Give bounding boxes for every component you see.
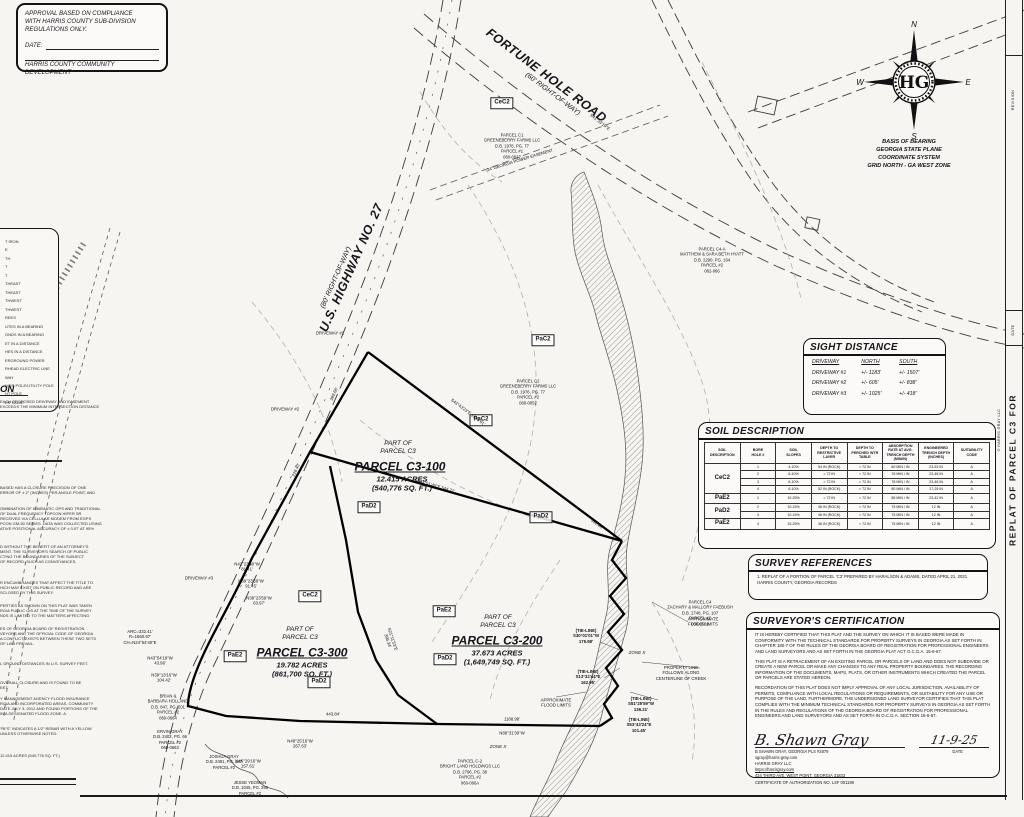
legend-line: ONDS IN A BEARING [5, 331, 58, 339]
soil-row: 310-15%36 IN (ROCK)> 72 IN75 MIN / IN12 … [705, 511, 990, 518]
left-note-block: OMBINATION OF KINEMATIC GPS AND TRADITIO… [0, 507, 72, 531]
map-label: DRIVEWAY #3 [185, 575, 213, 580]
map-label: N46°29'16"W 157.61' [235, 759, 261, 770]
map-label: PaC2 [531, 334, 554, 346]
surveyor-name-line: B SHAWN GRAY, GEORGIA PLS #2879 [755, 749, 828, 754]
legend-line: TH [5, 255, 58, 263]
legend-line: REES [5, 314, 58, 322]
map-label: ZONE X [629, 650, 646, 656]
sight-cell: +/- 1183' [861, 370, 899, 376]
map-label: ARC=332.41' R=1660.97' CH=N24°54'40"E [123, 629, 156, 645]
map-label: DRIVEWAY #1 [316, 330, 344, 335]
left-note-block: ES OF GEORGIA BOARD OF REGISTRATIONVEYOR… [0, 627, 72, 647]
soil-row: CeC2 14-10%54 IN (ROCK)> 72 IN80 MIN / I… [705, 463, 990, 470]
approval-text: APPROVAL BASED ON COMPLIANCE WITH HARRIS… [25, 10, 159, 35]
certification-paragraph: IT IS HEREBY CERTIFIED THAT THIS PLAT AN… [755, 632, 991, 655]
surveyor-signature-line: B. Shawn Gray [755, 725, 905, 748]
map-label: CeC2 [298, 590, 321, 602]
map-label: JESSE YEOMAN D.B. 1045, PG. 295 PARCEL #… [232, 780, 268, 796]
soil-th: SOIL DESCRIPTION [705, 443, 741, 464]
map-label: PARCEL C4-A MATTHEW & SARA BETH HYATT D.… [680, 246, 744, 273]
compass-rose: HG N S W E [856, 18, 972, 145]
sight-cell: DRIVEWAY #2 [812, 380, 861, 386]
soil-th: ABSORPTION RATE AT AVG. TRENCH DEPTH (MI… [883, 443, 919, 464]
soil-th: DEPTH TO PERCHED WTR TABLE [847, 443, 883, 464]
map-label: (TIE-LINE) S51°25'59"W 136.21' [628, 696, 654, 712]
map-label: 1188.98' [504, 716, 520, 721]
legend-line: HES IN A DISTANCE [5, 348, 58, 356]
date-label: DATE [952, 749, 963, 754]
approval-date-blank [46, 49, 160, 50]
legend-line: THEAST [5, 289, 58, 297]
soil-row: 36-10%> 72 IN> 72 IN78 MIN / IN23-48 INA [705, 478, 990, 485]
sight-distance-box: SIGHT DISTANCE DRIVEWAY NORTH SOUTH DRIV… [803, 338, 946, 415]
map-label: (TIE-LINE) S53°43'24"E 101.45' [627, 717, 652, 733]
sight-cell: DRIVEWAY #3 [812, 391, 861, 397]
approval-date-label: DATE: [25, 42, 43, 50]
soil-th: DEPTH TO RESTRICTIVE LAYER [811, 443, 847, 464]
sight-col-south: SOUTH [899, 359, 937, 365]
soil-description-title: SOIL DESCRIPTION [699, 423, 995, 440]
legend-line: WAY [5, 374, 58, 382]
soil-description-box: SOIL DESCRIPTION SOIL DESCRIPTION BORE H… [698, 422, 996, 549]
map-label: 443.84' [326, 711, 340, 716]
soil-row: 26-10%> 72 IN> 72 IN78 MIN / IN23-48 INA [705, 471, 990, 478]
map-label: N42°23'10"W 81.41' [234, 562, 260, 573]
survey-references-box: SURVEY REFERENCES 1. REPLAT OF A PORTION… [748, 554, 988, 600]
map-label: N43°54'19"W 43.96' [147, 656, 173, 667]
approval-agency: HARRIS COUNTY COMMUNITY DEVELOPMENT [25, 61, 159, 77]
sight-cell: +/- 1507' [899, 370, 937, 376]
map-label: PART OF PARCEL C3 [480, 614, 516, 630]
map-label: (TIE-LINE) S30°01'01"W 175.98' [573, 628, 599, 644]
left-note-block: EACH PROPOSED DRIVEWAY AND EASEMENTEXCEE… [0, 400, 72, 410]
left-note-block: 12.415 ACRES (540,776 SQ. FT.) [0, 754, 72, 759]
map-label: N48°25'16"W 267.63' [287, 739, 313, 750]
map-label: PaD2 [529, 511, 552, 523]
legend-line: ET IN A DISTANCE [5, 340, 58, 348]
map-label: PaD2 [433, 653, 456, 665]
soil-table: SOIL DESCRIPTION BORE HOLE # SOIL SLOPES… [704, 442, 990, 530]
left-note-block: R ENCUMBRANCES THAT AFFECT THE TITLE TOH… [0, 581, 72, 596]
sight-col-driveway: DRIVEWAY [812, 359, 861, 365]
sight-cell: +/- 418' [899, 391, 937, 397]
map-label: ERVIN GRAY D.B. 2402, PG. 66 PARCEL #2 0… [153, 729, 187, 751]
left-note-block: BASED HAS A CLOSURE PRECISION OF ONEERRO… [0, 486, 72, 496]
soil-row: PaD2 210-15%36 IN (ROCK)> 72 IN75 MIN / … [705, 504, 990, 511]
plat-sheet: FORTUNE HOLE ROAD(60' RIGHT-OF-WAY)U.S. … [0, 0, 1024, 817]
legend-line: RHEAD ELECTRIC LINE [5, 365, 58, 373]
soil-code: PaE2 [705, 519, 741, 530]
compass-monogram: HG [899, 73, 930, 93]
map-label: BRIAN & BARBARA HOLLAND D.B. 847, PG. 20… [148, 693, 189, 720]
map-label: N89°31'30"W [499, 730, 525, 735]
map-label: PaD2 [357, 501, 380, 513]
legend-line: THEAST [5, 280, 58, 288]
map-label: N39°23'59"W 91.45' [238, 579, 264, 590]
map-label: PaE2 [224, 650, 247, 662]
map-label: APPROXIMATE FLOOD LIMITS [688, 617, 719, 628]
power-easement-line-1 [430, 105, 660, 190]
soil-th: SOIL SLOPES [776, 443, 812, 464]
map-label: CeC2 [490, 97, 513, 109]
parcel-boundary [188, 352, 626, 726]
left-note-block: D WITHOUT THE BENEFIT OF AN ATTORNEY'SME… [0, 545, 72, 565]
map-label: PART OF PARCEL C3 [380, 440, 416, 456]
soil-th: ENGINEERED TRENCH DEPTH (INCHES) [918, 443, 954, 464]
left-note-block: Y MANAGEMENT AGENCY FLOOD INSURANCERGIA … [0, 697, 72, 717]
highway-27-centerline [165, 0, 452, 817]
map-label: PARCEL C3-200 [452, 634, 543, 649]
left-border-line [0, 460, 62, 462]
surveyor-contact: sgray@harris-gray.com HARRIS GRAY LLC ht… [747, 754, 999, 787]
basis-of-bearing: BASIS OF BEARING GEORGIA STATE PLANE COO… [843, 138, 975, 170]
legend-line: THWEST [5, 297, 58, 305]
map-label: N39°23'59"W 63.97' [246, 596, 272, 607]
soil-code: CeC2 [705, 463, 741, 493]
survey-reference-item: 1. REPLAT OF A PORTION OF PARCEL 'C3' PR… [749, 572, 987, 588]
map-label: REPLAT OF PARCEL C3 FOR [1008, 394, 1019, 546]
legend-line: UTES IN A BEARING [5, 323, 58, 331]
legend-line: THWEST [5, 306, 58, 314]
map-label: DRIVEWAY #2 [271, 406, 299, 411]
highway-27-east-edge [174, 0, 461, 817]
approval-stamp-box: APPROVAL BASED ON COMPLIANCE WITH HARRIS… [16, 3, 168, 72]
soil-row: PaE2 110-25%> 72 IN> 72 IN85 MIN / IN23-… [705, 493, 990, 504]
legend-line: ERGROUND POWER [5, 357, 58, 365]
map-label: DATE [1011, 325, 1015, 336]
surveyor-signature: B. Shawn Gray [753, 731, 870, 749]
soil-row: 46-10%52 IN (ROCK)> 72 IN80 MIN / IN17-2… [705, 486, 990, 493]
certification-paragraph: RECORDATION OF THIS PLAT DOES NOT IMPLY … [755, 685, 991, 719]
legend-line: T IRON [5, 238, 58, 246]
certification-title: SURVEYOR'S CERTIFICATION [747, 613, 999, 630]
map-label: PARCEL C3-100 [355, 460, 446, 475]
legend-line: E [5, 246, 58, 254]
map-label: PART OF PARCEL C3 [282, 626, 318, 642]
left-note-block: PERTIES AS SHOWN ON THIS PLAT WAS TAKENR… [0, 604, 72, 619]
signature-date-line: 11-9-25 [919, 725, 989, 748]
highway-27-west-edge [156, 0, 443, 817]
map-label: PARCEL C2 GREENEBERRY FARMS LLC D.B. 197… [500, 378, 556, 405]
survey-references-title: SURVEY REFERENCES [749, 555, 987, 572]
map-label: © HARRIS GRAY LLC [997, 409, 1001, 451]
sheet-bottom-border [80, 795, 1007, 797]
left-note-block: "RFS" INDICATES A 1/2" REBAR WITH A YELL… [0, 727, 72, 737]
sight-cell: +/- 605' [861, 380, 899, 386]
map-label: N39°13'16"W 104.42' [151, 673, 177, 684]
map-label: 37.673 ACRES (1,649,749 SQ. FT.) [464, 649, 530, 668]
map-label: PARCEL C-2 BRIGHT LAND HOLDINGS LLC D.B.… [440, 758, 500, 785]
soil-th: BORE HOLE # [740, 443, 776, 464]
soil-row: PaE2 415-25%36 IN (ROCK)> 72 IN75 MIN / … [705, 519, 990, 530]
compass-star: HG [864, 30, 964, 130]
compass-e: E [965, 78, 971, 87]
compass-w: W [856, 78, 865, 87]
left-note-block: OVERALL CLOSURE AND IS FOUND TO BEEET. [0, 681, 72, 691]
legend-line: T [5, 263, 58, 271]
compass-n: N [911, 20, 917, 29]
surveyors-certification-box: SURVEYOR'S CERTIFICATION IT IS HEREBY CE… [746, 612, 1000, 778]
left-border-corner [0, 778, 76, 785]
soil-th: SUITABILITY CODE [954, 443, 990, 464]
map-label: PARCEL C3-300 [257, 646, 348, 661]
certification-paragraph: THIS PLAT IS A RETRACEMENT OF AN EXISTIN… [755, 659, 991, 682]
left-note-header: ON [0, 384, 28, 396]
map-label: PaE2 [433, 605, 456, 617]
soil-code: PaE2 [705, 493, 741, 504]
map-label: APPROXIMATE FLOOD LIMITS [541, 698, 572, 709]
sight-cell: +/- 838' [899, 380, 937, 386]
left-note-block: L GROUND DISTANCES IN U.S. SURVEY FEET. [0, 662, 72, 667]
sight-col-north: NORTH [861, 359, 899, 365]
sight-cell: +/- 1025' [861, 391, 899, 397]
map-label: REVISION [1011, 90, 1015, 110]
sight-cell: DRIVEWAY #1 [812, 370, 861, 376]
map-label: (TIE-LINE) S13°32'44"E 162.95' [576, 669, 601, 685]
signature-date: 11-9-25 [930, 733, 979, 747]
map-label: PaD2 [307, 676, 330, 688]
soil-code: PaD2 [705, 504, 741, 519]
sight-distance-title: SIGHT DISTANCE [804, 339, 945, 356]
legend-line: T [5, 272, 58, 280]
map-label: PROPERTY LINE FOLLOWS ALONG CENTERLINE O… [656, 665, 706, 681]
map-label: ZONE X [490, 744, 507, 750]
